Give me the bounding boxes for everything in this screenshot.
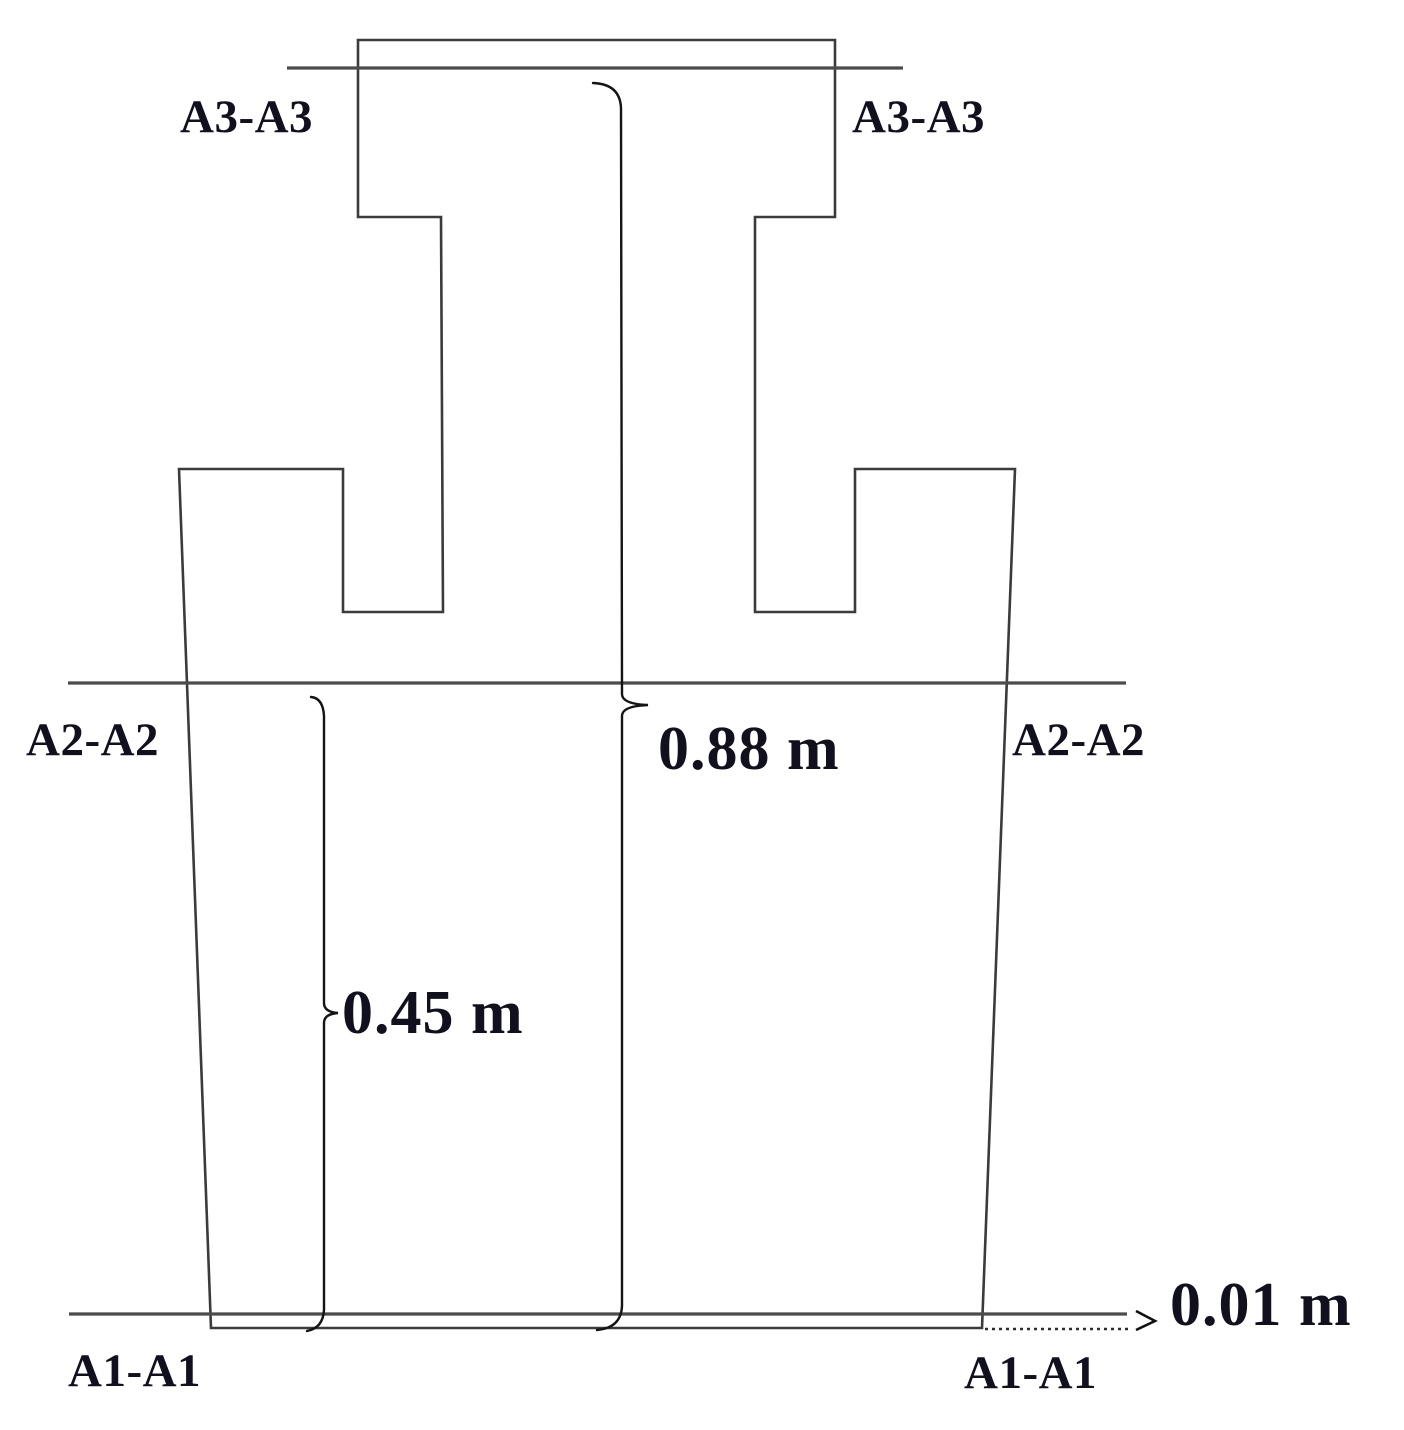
height-brace-045 [307, 697, 338, 1331]
pier-section-diagram: A3-A3 A3-A3 A2-A2 A2-A2 A1-A1 A1-A1 0.88… [0, 0, 1404, 1430]
dimension-bottom-offset: 0.01 m [1170, 1274, 1352, 1336]
label-a1-left: A1-A1 [68, 1348, 201, 1395]
label-a3-left: A3-A3 [180, 94, 313, 141]
offset-arrow-icon [1136, 1311, 1155, 1330]
dimension-lower-height: 0.45 m [342, 982, 524, 1044]
label-a1-right: A1-A1 [964, 1350, 1097, 1397]
label-a3-right: A3-A3 [852, 94, 985, 141]
label-a2-right: A2-A2 [1012, 717, 1145, 764]
height-brace-088 [593, 83, 648, 1330]
dimension-total-height: 0.88 m [658, 718, 840, 780]
label-a2-left: A2-A2 [26, 717, 159, 764]
